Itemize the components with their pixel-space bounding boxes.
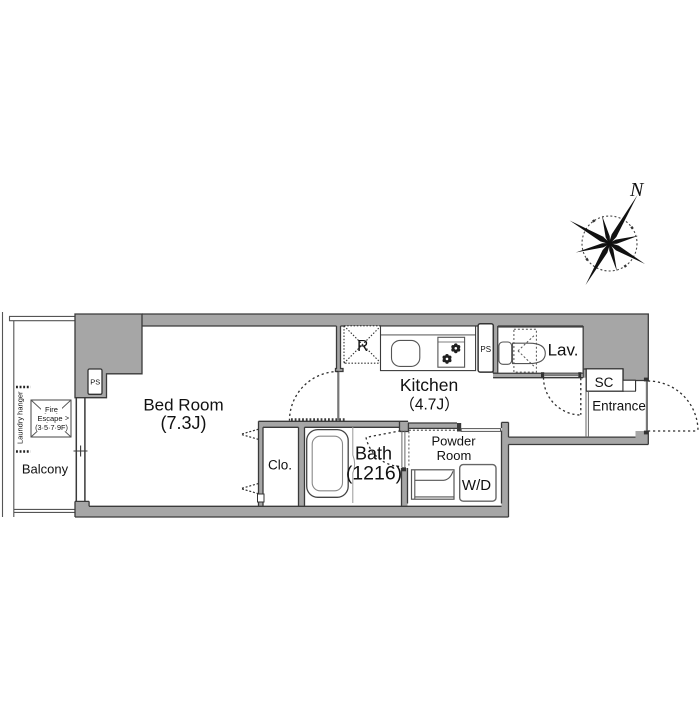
svg-text:Room: Room [437, 448, 472, 463]
svg-text:Balcony: Balcony [22, 462, 69, 477]
svg-text:Lav.: Lav. [548, 340, 579, 359]
svg-text:Escape: Escape [37, 414, 62, 423]
svg-text:SC: SC [595, 375, 614, 390]
svg-text:Clo.: Clo. [268, 457, 292, 472]
svg-text:(1216): (1216) [346, 463, 402, 485]
svg-text:PS: PS [480, 345, 491, 354]
svg-text:Entrance: Entrance [592, 398, 646, 413]
svg-text:Powder: Powder [431, 434, 476, 449]
svg-text:>: > [65, 416, 69, 423]
svg-text:Bath: Bath [355, 443, 392, 463]
svg-text:PS: PS [90, 378, 100, 387]
svg-text:R: R [357, 338, 368, 355]
svg-text:(3·5·7·9F): (3·5·7·9F) [35, 423, 68, 432]
svg-text:Laundry hanger: Laundry hanger [16, 391, 25, 444]
svg-text:Fire: Fire [45, 405, 58, 414]
svg-text:W/D: W/D [462, 477, 491, 494]
svg-text:N: N [629, 179, 645, 201]
svg-text:（4.7J）: （4.7J） [399, 397, 459, 414]
svg-text:(7.3J): (7.3J) [160, 413, 206, 433]
svg-text:Kitchen: Kitchen [400, 375, 458, 395]
